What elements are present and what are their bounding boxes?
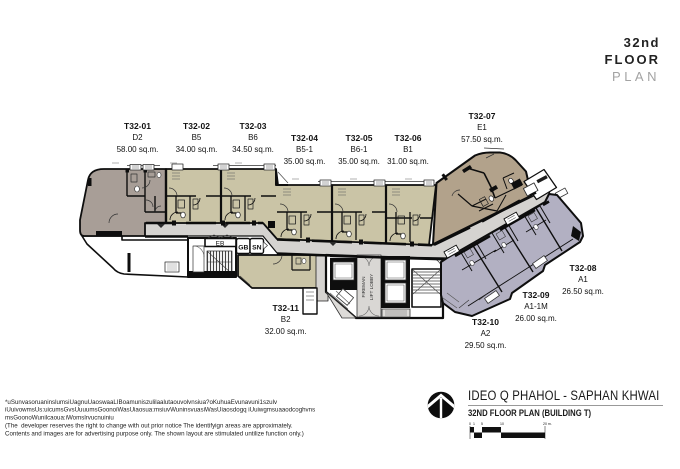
svg-text:20 m.: 20 m. <box>543 422 552 426</box>
svg-text:5: 5 <box>481 422 483 426</box>
svg-text:GB: GB <box>238 245 248 252</box>
svg-text:EB: EB <box>216 241 225 248</box>
svg-text:10: 10 <box>500 422 504 426</box>
svg-text:1: 1 <box>473 422 475 426</box>
svg-text:SN: SN <box>252 245 262 252</box>
svg-text:LIFT LOBBY: LIFT LOBBY <box>369 273 374 300</box>
svg-text:0: 0 <box>469 422 471 426</box>
svg-text:FIREMAN: FIREMAN <box>361 276 366 297</box>
